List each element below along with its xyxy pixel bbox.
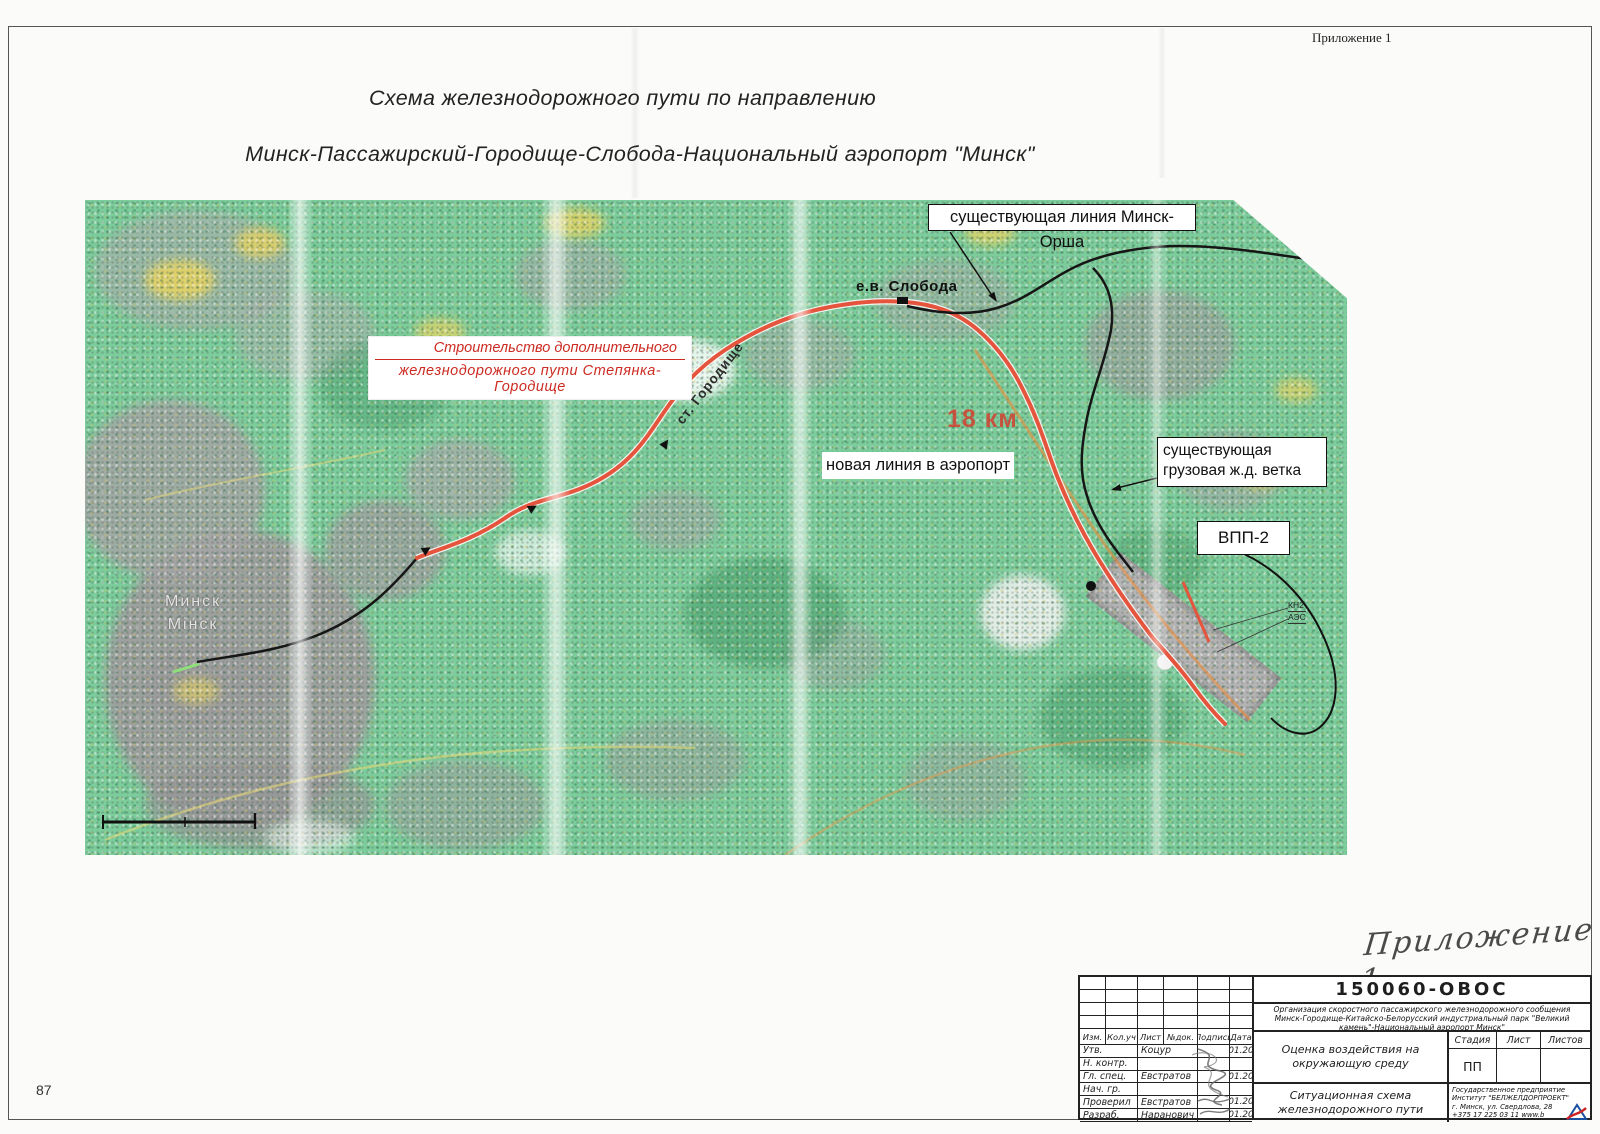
signature-row: Нач. гр. xyxy=(1080,1083,1252,1096)
page-title-line2: Минск-Пассажирский-Городище-Слобода-Наци… xyxy=(85,142,1195,167)
row-name: Евстратов xyxy=(1138,1071,1198,1083)
scale-bar xyxy=(103,813,255,829)
row-name: Коцур xyxy=(1138,1045,1198,1057)
row-date: 01.20 xyxy=(1230,1096,1252,1108)
section-environment: Оценка воздействия на окружающую среду xyxy=(1254,1032,1449,1082)
freight-label-line2: грузовая ж.д. ветка xyxy=(1163,461,1321,481)
row-name xyxy=(1138,1083,1198,1095)
section-env-line2: окружающую среду xyxy=(1292,1057,1408,1071)
signature-row: Утв. Коцур 01.20 xyxy=(1080,1045,1252,1058)
row-signature xyxy=(1198,1058,1230,1070)
route-arrow-icon xyxy=(659,437,672,450)
label-runway-vpp2: ВПП-2 xyxy=(1197,521,1290,555)
company-logo-icon xyxy=(1565,1102,1589,1121)
row-date xyxy=(1230,1058,1252,1070)
section-env-line1: Оценка воздействия на xyxy=(1282,1043,1420,1057)
label-freight-branch: существующая грузовая ж.д. ветка xyxy=(1157,437,1327,487)
scanned-document-page: Приложение 1 Схема железнодорожного пути… xyxy=(0,0,1600,1134)
col-izm: Изм. xyxy=(1080,1029,1106,1044)
road xyxy=(145,450,385,500)
title-block-stamp: Изм. Кол.уч Лист №док. Подпись Дата Утв.… xyxy=(1078,975,1592,1120)
label-sloboda-stop: е.в. Слобода xyxy=(856,278,958,295)
fold-crease xyxy=(630,28,640,198)
page-title-line1: Схема железнодорожного пути по направлен… xyxy=(85,86,1160,111)
col-data: Дата xyxy=(1230,1029,1252,1044)
signature-row: Разраб. Наранович 01.20 xyxy=(1080,1109,1252,1122)
row-signature xyxy=(1198,1071,1230,1083)
row-role: Утв. xyxy=(1080,1045,1138,1057)
title-block-right: 150060-ОВОС Организация скоростного пасс… xyxy=(1254,977,1590,1118)
row-name: Евстратов xyxy=(1138,1096,1198,1108)
row-role: Гл. спец. xyxy=(1080,1071,1138,1083)
appendix-note: Приложение 1 xyxy=(1312,30,1392,46)
situational-map: существующая линия Минск-Орша е.в. Слобо… xyxy=(85,200,1347,855)
row-signature xyxy=(1198,1045,1230,1057)
road xyxy=(105,747,695,840)
row-role: Н. контр. xyxy=(1080,1058,1138,1070)
page-number: 87 xyxy=(36,1082,52,1098)
signature-row: Н. контр. xyxy=(1080,1058,1252,1071)
map-lines-overlay xyxy=(85,200,1347,855)
label-new-line-to-airport: новая линия в аэропорт xyxy=(822,452,1014,479)
sheet-label: Лист xyxy=(1497,1032,1541,1048)
sheets-value xyxy=(1541,1049,1590,1084)
row-role: Проверил xyxy=(1080,1096,1138,1108)
railway-existing-west xyxy=(197,558,417,662)
title-block-signature-table: Изм. Кол.уч Лист №док. Подпись Дата Утв.… xyxy=(1080,977,1254,1118)
col-ndok: №док. xyxy=(1164,1029,1198,1044)
row-date: 01.20 xyxy=(1230,1071,1252,1083)
note-aes: АЭС xyxy=(1288,612,1306,624)
sheet-value xyxy=(1497,1049,1541,1084)
city-name-by: Мінск xyxy=(165,613,221,636)
row-signature xyxy=(1198,1109,1230,1121)
section-scheme-line2: железнодорожного пути xyxy=(1278,1103,1423,1117)
row-signature xyxy=(1198,1096,1230,1108)
label-distance-18km: 18 км xyxy=(947,405,1018,434)
title-block-bottom-row: Ситуационная схема железнодорожного пути… xyxy=(1254,1084,1590,1122)
station-dot-marker xyxy=(1086,581,1096,591)
col-podpis: Подпись xyxy=(1198,1029,1230,1044)
label-existing-line-minsk-orsha: существующая линия Минск-Орша xyxy=(928,204,1196,231)
row-role: Нач. гр. xyxy=(1080,1083,1138,1095)
construction-note-line2: железнодорожного пути Степянка-Городище xyxy=(375,360,685,395)
project-description-line2: Минск-Городище-Китайско-Белорусский инду… xyxy=(1254,1014,1590,1023)
row-date: 01.20 xyxy=(1230,1045,1252,1057)
label-city-minsk: Минск Мінск xyxy=(165,590,221,636)
row-date xyxy=(1230,1083,1252,1095)
sloboda-stop-marker xyxy=(897,297,908,304)
company-block: Государственное предприятие Институт "БЕ… xyxy=(1449,1084,1590,1122)
row-role: Разраб. xyxy=(1080,1109,1138,1121)
railway-minsk-orsha xyxy=(907,246,1347,313)
stage-label: Стадия xyxy=(1449,1032,1497,1048)
signature-table-header: Изм. Кол.уч Лист №док. Подпись Дата xyxy=(1080,1029,1252,1045)
col-list: Лист xyxy=(1138,1029,1164,1044)
title-block-middle-row: Оценка воздействия на окружающую среду С… xyxy=(1254,1032,1590,1084)
arrowhead-icon xyxy=(1111,484,1122,491)
railway-freight-branch xyxy=(1082,268,1133,572)
kn2-pointer-line xyxy=(1213,608,1288,630)
stage-table: Стадия Лист Листов ПП xyxy=(1449,1032,1590,1082)
signature-row: Гл. спец. Евстратов 01.20 xyxy=(1080,1071,1252,1084)
city-name-ru: Минск xyxy=(165,590,221,613)
freight-label-line1: существующая xyxy=(1163,441,1321,461)
project-description-line1: Организация скоростного пассажирского же… xyxy=(1254,1005,1590,1014)
section-scheme: Ситуационная схема железнодорожного пути xyxy=(1254,1084,1449,1122)
row-date: 01.20 xyxy=(1230,1109,1252,1121)
sheets-label: Листов xyxy=(1541,1032,1590,1048)
label-kn2-aes: КН2 АЭС xyxy=(1288,600,1306,624)
railway-new-casing xyxy=(905,302,1225,724)
stage-value: ПП xyxy=(1449,1049,1497,1084)
signature-row: Проверил Евстратов 01.20 xyxy=(1080,1096,1252,1109)
road xyxy=(785,740,1245,855)
label-construction-note: Строительство дополнительного железнодор… xyxy=(368,336,692,400)
runway-mark xyxy=(1183,582,1209,642)
section-scheme-line1: Ситуационная схема xyxy=(1290,1089,1411,1103)
aes-pointer-line xyxy=(1217,619,1288,652)
row-name: Наранович xyxy=(1138,1109,1198,1121)
document-number: 150060-ОВОС xyxy=(1254,977,1590,1004)
company-line1: Государственное предприятие xyxy=(1452,1086,1587,1094)
row-name xyxy=(1138,1058,1198,1070)
col-koluch: Кол.уч xyxy=(1106,1029,1138,1044)
row-signature xyxy=(1198,1083,1230,1095)
project-description: Организация скоростного пассажирского же… xyxy=(1254,1004,1590,1032)
airport-boundary xyxy=(1235,550,1336,734)
railway-west-green-tail xyxy=(173,664,199,672)
construction-note-line1: Строительство дополнительного xyxy=(375,340,685,360)
revision-grid xyxy=(1080,977,1252,1029)
note-kn2: КН2 xyxy=(1288,600,1306,612)
